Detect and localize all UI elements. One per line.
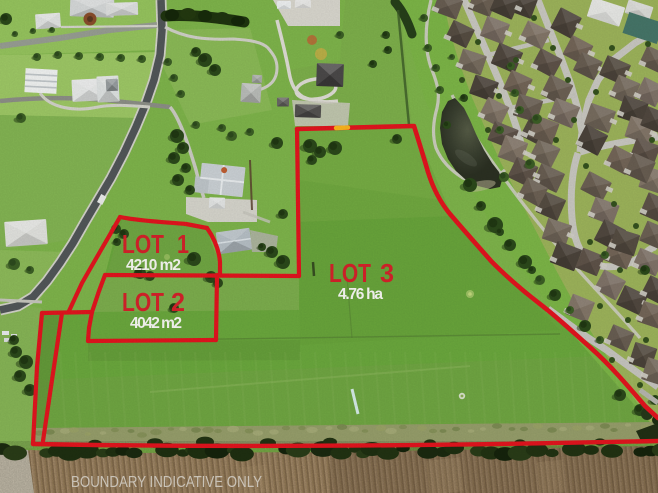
- svg-text:BOUNDARY INDICATIVE ONLY: BOUNDARY INDICATIVE ONLY: [71, 474, 262, 491]
